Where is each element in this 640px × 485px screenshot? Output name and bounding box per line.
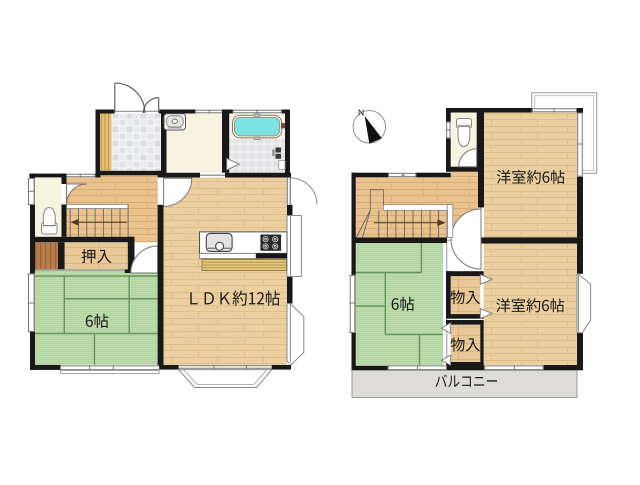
svg-text:N: N (358, 108, 364, 118)
